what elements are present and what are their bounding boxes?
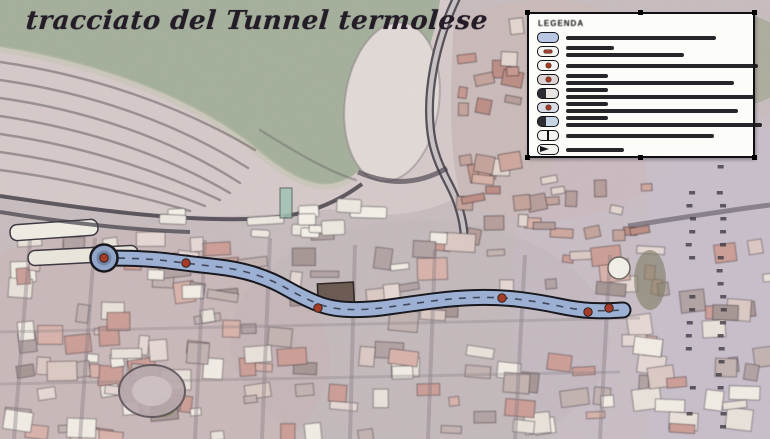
legend-handle[interactable] [638, 10, 643, 15]
red-dash-icon [544, 50, 552, 53]
legend-text-line [566, 53, 684, 57]
legend-text-line [566, 36, 716, 40]
legend-panel: LEGENDA [527, 12, 755, 158]
legend-text-smudged [566, 46, 684, 57]
legend-handle[interactable] [638, 155, 643, 160]
legend-title: LEGENDA [538, 19, 745, 28]
legend-text-line [566, 74, 608, 78]
legend-swatch-icon [537, 116, 559, 127]
legend-text-line [566, 116, 608, 120]
legend-handle[interactable] [525, 10, 530, 15]
legend-text-line [566, 95, 754, 99]
legend-item [537, 116, 745, 127]
legend-swatch-icon [537, 60, 559, 71]
legend-swatch-icon [537, 130, 559, 141]
legend-text-line [566, 123, 762, 127]
legend-rows [537, 32, 745, 155]
legend-item [537, 88, 745, 99]
red-dot-icon [546, 63, 551, 68]
legend-item [537, 74, 745, 85]
legend-item [537, 60, 745, 71]
legend-text-smudged [566, 36, 716, 40]
legend-item [537, 102, 745, 113]
legend-text-smudged [566, 148, 624, 152]
arrow-icon [540, 146, 549, 152]
legend-text-smudged [566, 64, 758, 68]
legend-swatch-icon [537, 46, 559, 57]
legend-text-line [566, 88, 608, 92]
red-dot-icon [546, 77, 551, 82]
legend-text-line [566, 46, 614, 50]
legend-text-line [566, 64, 758, 68]
legend-text-smudged [566, 116, 762, 127]
legend-text-line [566, 148, 624, 152]
legend-text-line [566, 109, 738, 113]
divider-icon [547, 131, 549, 140]
legend-text-smudged [566, 102, 738, 113]
legend-item [537, 32, 745, 43]
map-canvas: tracciato del Tunnel termolese LEGENDA [0, 0, 770, 439]
legend-text-line [566, 81, 734, 85]
legend-text-smudged [566, 134, 714, 138]
legend-handle[interactable] [752, 10, 757, 15]
legend-text-line [566, 134, 714, 138]
legend-item [537, 130, 745, 141]
dark-left-icon [538, 117, 546, 126]
legend-handle[interactable] [752, 155, 757, 160]
legend-swatch-icon [537, 102, 559, 113]
red-dot-icon [546, 105, 551, 110]
legend-text-smudged [566, 74, 734, 85]
dark-left-icon [538, 89, 546, 98]
legend-swatch-icon [537, 32, 559, 43]
legend-handle[interactable] [525, 155, 530, 160]
legend-item [537, 46, 745, 57]
legend-swatch-icon [537, 74, 559, 85]
legend-text-line [566, 102, 608, 106]
legend-item [537, 144, 745, 155]
legend-swatch-icon [537, 88, 559, 99]
legend-swatch-icon [537, 144, 559, 155]
page-title: tracciato del Tunnel termolese [25, 6, 388, 36]
legend-text-smudged [566, 88, 754, 99]
